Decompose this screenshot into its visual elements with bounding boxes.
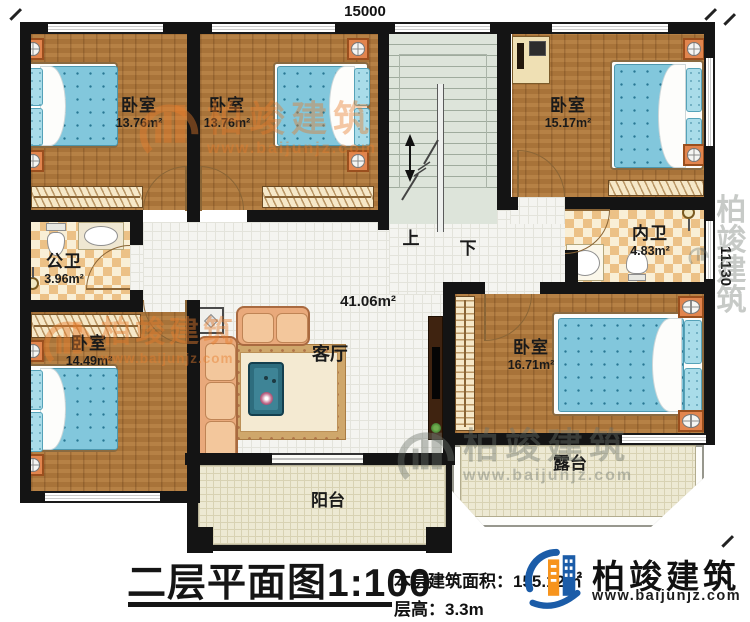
room-name: 卧室 bbox=[528, 96, 608, 116]
wall-bedroom3-bottom bbox=[497, 197, 518, 210]
balcony-post bbox=[426, 527, 452, 553]
lamp-icon bbox=[682, 414, 700, 428]
bed-pillow bbox=[684, 368, 702, 412]
sofa-cushion bbox=[276, 313, 308, 343]
door-threshold bbox=[130, 245, 143, 290]
wall-living-bottom bbox=[185, 453, 272, 465]
balcony-post bbox=[187, 527, 213, 553]
room-label-bedroom-top-right: 卧室 15.17m² bbox=[528, 96, 608, 130]
wall-bedroom5-bottom bbox=[706, 433, 715, 445]
tv-icon bbox=[432, 347, 440, 399]
bed-pillow bbox=[354, 108, 370, 146]
toilet-tank bbox=[628, 274, 646, 281]
stair-direction-arrow bbox=[392, 100, 492, 210]
wardrobe-rod bbox=[265, 196, 371, 198]
toilet-tank bbox=[46, 223, 66, 231]
room-area: 14.49m² bbox=[49, 354, 129, 368]
dimension-right: 11130 bbox=[717, 246, 734, 286]
room-label-terrace: 露台 bbox=[530, 449, 610, 474]
bed bbox=[552, 312, 704, 416]
wall-publicbath-bottom bbox=[20, 300, 130, 312]
lamp-icon bbox=[682, 300, 700, 314]
balcony-sliding-door bbox=[272, 453, 363, 465]
window bbox=[552, 22, 668, 34]
wardrobe bbox=[31, 186, 143, 208]
bed-sheet bbox=[658, 64, 686, 168]
room-name: 卧室 bbox=[49, 334, 129, 354]
tv-cabinet bbox=[428, 316, 443, 440]
room-name: 卧室 bbox=[99, 96, 179, 116]
door-leaf bbox=[484, 294, 486, 341]
wall-stairwell-left bbox=[378, 22, 389, 230]
side-table bbox=[197, 307, 224, 334]
room-label-balcony: 阳台 bbox=[288, 486, 368, 511]
bed-pillow bbox=[686, 68, 702, 112]
wardrobe-rod bbox=[34, 325, 138, 327]
table-decor bbox=[272, 379, 276, 383]
dimension-top: 15000 bbox=[320, 3, 410, 20]
room-area: 15.17m² bbox=[528, 116, 608, 130]
room-label-ensuite-bath: 内卫 4.83m² bbox=[610, 224, 690, 258]
sofa-cushion bbox=[242, 313, 274, 343]
wall-bedroom4-bottom bbox=[160, 491, 200, 503]
corridor-floor bbox=[510, 197, 565, 224]
door-leaf bbox=[185, 300, 187, 344]
bed-sheet bbox=[329, 66, 355, 146]
window bbox=[622, 433, 706, 445]
bed-pillow bbox=[684, 320, 702, 364]
dresser-item bbox=[517, 43, 524, 69]
wall-bedroom5-top bbox=[540, 282, 715, 294]
lamp-icon bbox=[687, 42, 701, 56]
window bbox=[45, 491, 160, 503]
company-logo-icon bbox=[520, 544, 590, 614]
wall-bedroom4-bottom bbox=[20, 491, 45, 503]
flower-decor bbox=[260, 392, 273, 405]
floor-height-value: 3.3m bbox=[445, 600, 484, 619]
floor-height-row: 层高：3.3m bbox=[394, 595, 484, 620]
window bbox=[704, 221, 715, 279]
side-table-lamp bbox=[204, 314, 218, 328]
bed bbox=[22, 364, 118, 452]
sofa bbox=[197, 336, 238, 462]
room-label-bedroom-bottom-left: 卧室 14.49m² bbox=[49, 334, 129, 368]
lamp-icon bbox=[687, 148, 701, 162]
dimension-tick bbox=[721, 535, 733, 547]
floor-area-label: 本层建筑面积： bbox=[394, 572, 513, 591]
floor-height-label: 层高： bbox=[394, 600, 445, 619]
wall-divider-bedroom4 bbox=[187, 300, 200, 503]
wall-living-bottom bbox=[363, 453, 452, 465]
room-area: 4.83m² bbox=[610, 244, 690, 258]
room-area: 13.76m² bbox=[99, 116, 179, 130]
room-area: 13.76m² bbox=[187, 116, 267, 130]
room-name: 卧室 bbox=[491, 338, 571, 358]
wall-stairwell-right bbox=[497, 22, 511, 197]
room-label-living: 客厅 bbox=[290, 340, 370, 366]
plan-title: 二层平面图1:100 bbox=[127, 552, 432, 608]
window bbox=[395, 22, 490, 34]
table-decor bbox=[264, 376, 268, 380]
bed bbox=[273, 62, 369, 148]
wall-bedrooms-bottom bbox=[20, 210, 143, 222]
lamp-icon bbox=[351, 42, 365, 56]
wardrobe-rod bbox=[34, 196, 140, 198]
nightstand bbox=[347, 38, 369, 60]
door-leaf bbox=[565, 209, 610, 211]
bed-sheet bbox=[652, 318, 682, 412]
room-label-bedroom-top-left: 卧室 13.76m² bbox=[99, 96, 179, 130]
door-leaf bbox=[86, 288, 130, 290]
dimension-tick bbox=[704, 8, 716, 20]
stairs-up-label: 上 bbox=[395, 224, 427, 249]
wall-bedrooms-bottom bbox=[247, 210, 389, 222]
lamp-icon bbox=[351, 154, 365, 168]
wardrobe bbox=[608, 180, 704, 196]
title-underline bbox=[128, 602, 392, 607]
door-leaf bbox=[185, 166, 187, 211]
floor-plan-page: 15000 11130 bbox=[0, 0, 750, 622]
room-label-bedroom-bottom-right: 卧室 16.71m² bbox=[491, 338, 571, 372]
dresser bbox=[512, 36, 550, 84]
room-label-bedroom-top-mid: 卧室 13.76m² bbox=[187, 96, 267, 130]
balcony-parapet bbox=[193, 545, 446, 551]
company-url: www.baijunjz.com bbox=[592, 588, 741, 604]
room-name: 卧室 bbox=[187, 96, 267, 116]
room-area-living: 41.06m² bbox=[328, 293, 408, 310]
room-name: 公卫 bbox=[24, 252, 104, 272]
sofa-cushion bbox=[205, 382, 236, 420]
room-area: 3.96m² bbox=[24, 272, 104, 286]
dimension-tick bbox=[723, 13, 735, 25]
nightstand bbox=[678, 296, 704, 318]
nightstand bbox=[678, 410, 704, 432]
room-name: 内卫 bbox=[610, 224, 690, 244]
dimension-tick bbox=[9, 8, 21, 20]
bed-pillow bbox=[354, 68, 370, 106]
nightstand bbox=[347, 150, 369, 172]
nightstand bbox=[683, 38, 705, 60]
wardrobe bbox=[455, 296, 475, 431]
window bbox=[212, 22, 335, 34]
room-area: 16.71m² bbox=[491, 358, 571, 372]
wall-publicbath-right bbox=[130, 222, 143, 245]
window bbox=[704, 58, 715, 146]
wardrobe bbox=[262, 186, 374, 208]
nightstand bbox=[683, 144, 705, 166]
room-label-public-bath: 公卫 3.96m² bbox=[24, 252, 104, 286]
wall-bedroom5-bottom bbox=[443, 433, 622, 445]
tv-icon bbox=[529, 41, 546, 56]
door-leaf bbox=[517, 150, 519, 197]
wall-publicbath-right bbox=[130, 290, 143, 312]
plant-icon bbox=[431, 423, 441, 433]
sofa-cushion bbox=[205, 343, 236, 381]
sink bbox=[84, 226, 118, 246]
wardrobe-rod bbox=[464, 300, 466, 428]
stairs-down-label: 下 bbox=[452, 234, 484, 259]
coffee-table bbox=[248, 362, 284, 416]
door-leaf bbox=[200, 166, 202, 211]
window bbox=[48, 22, 163, 34]
